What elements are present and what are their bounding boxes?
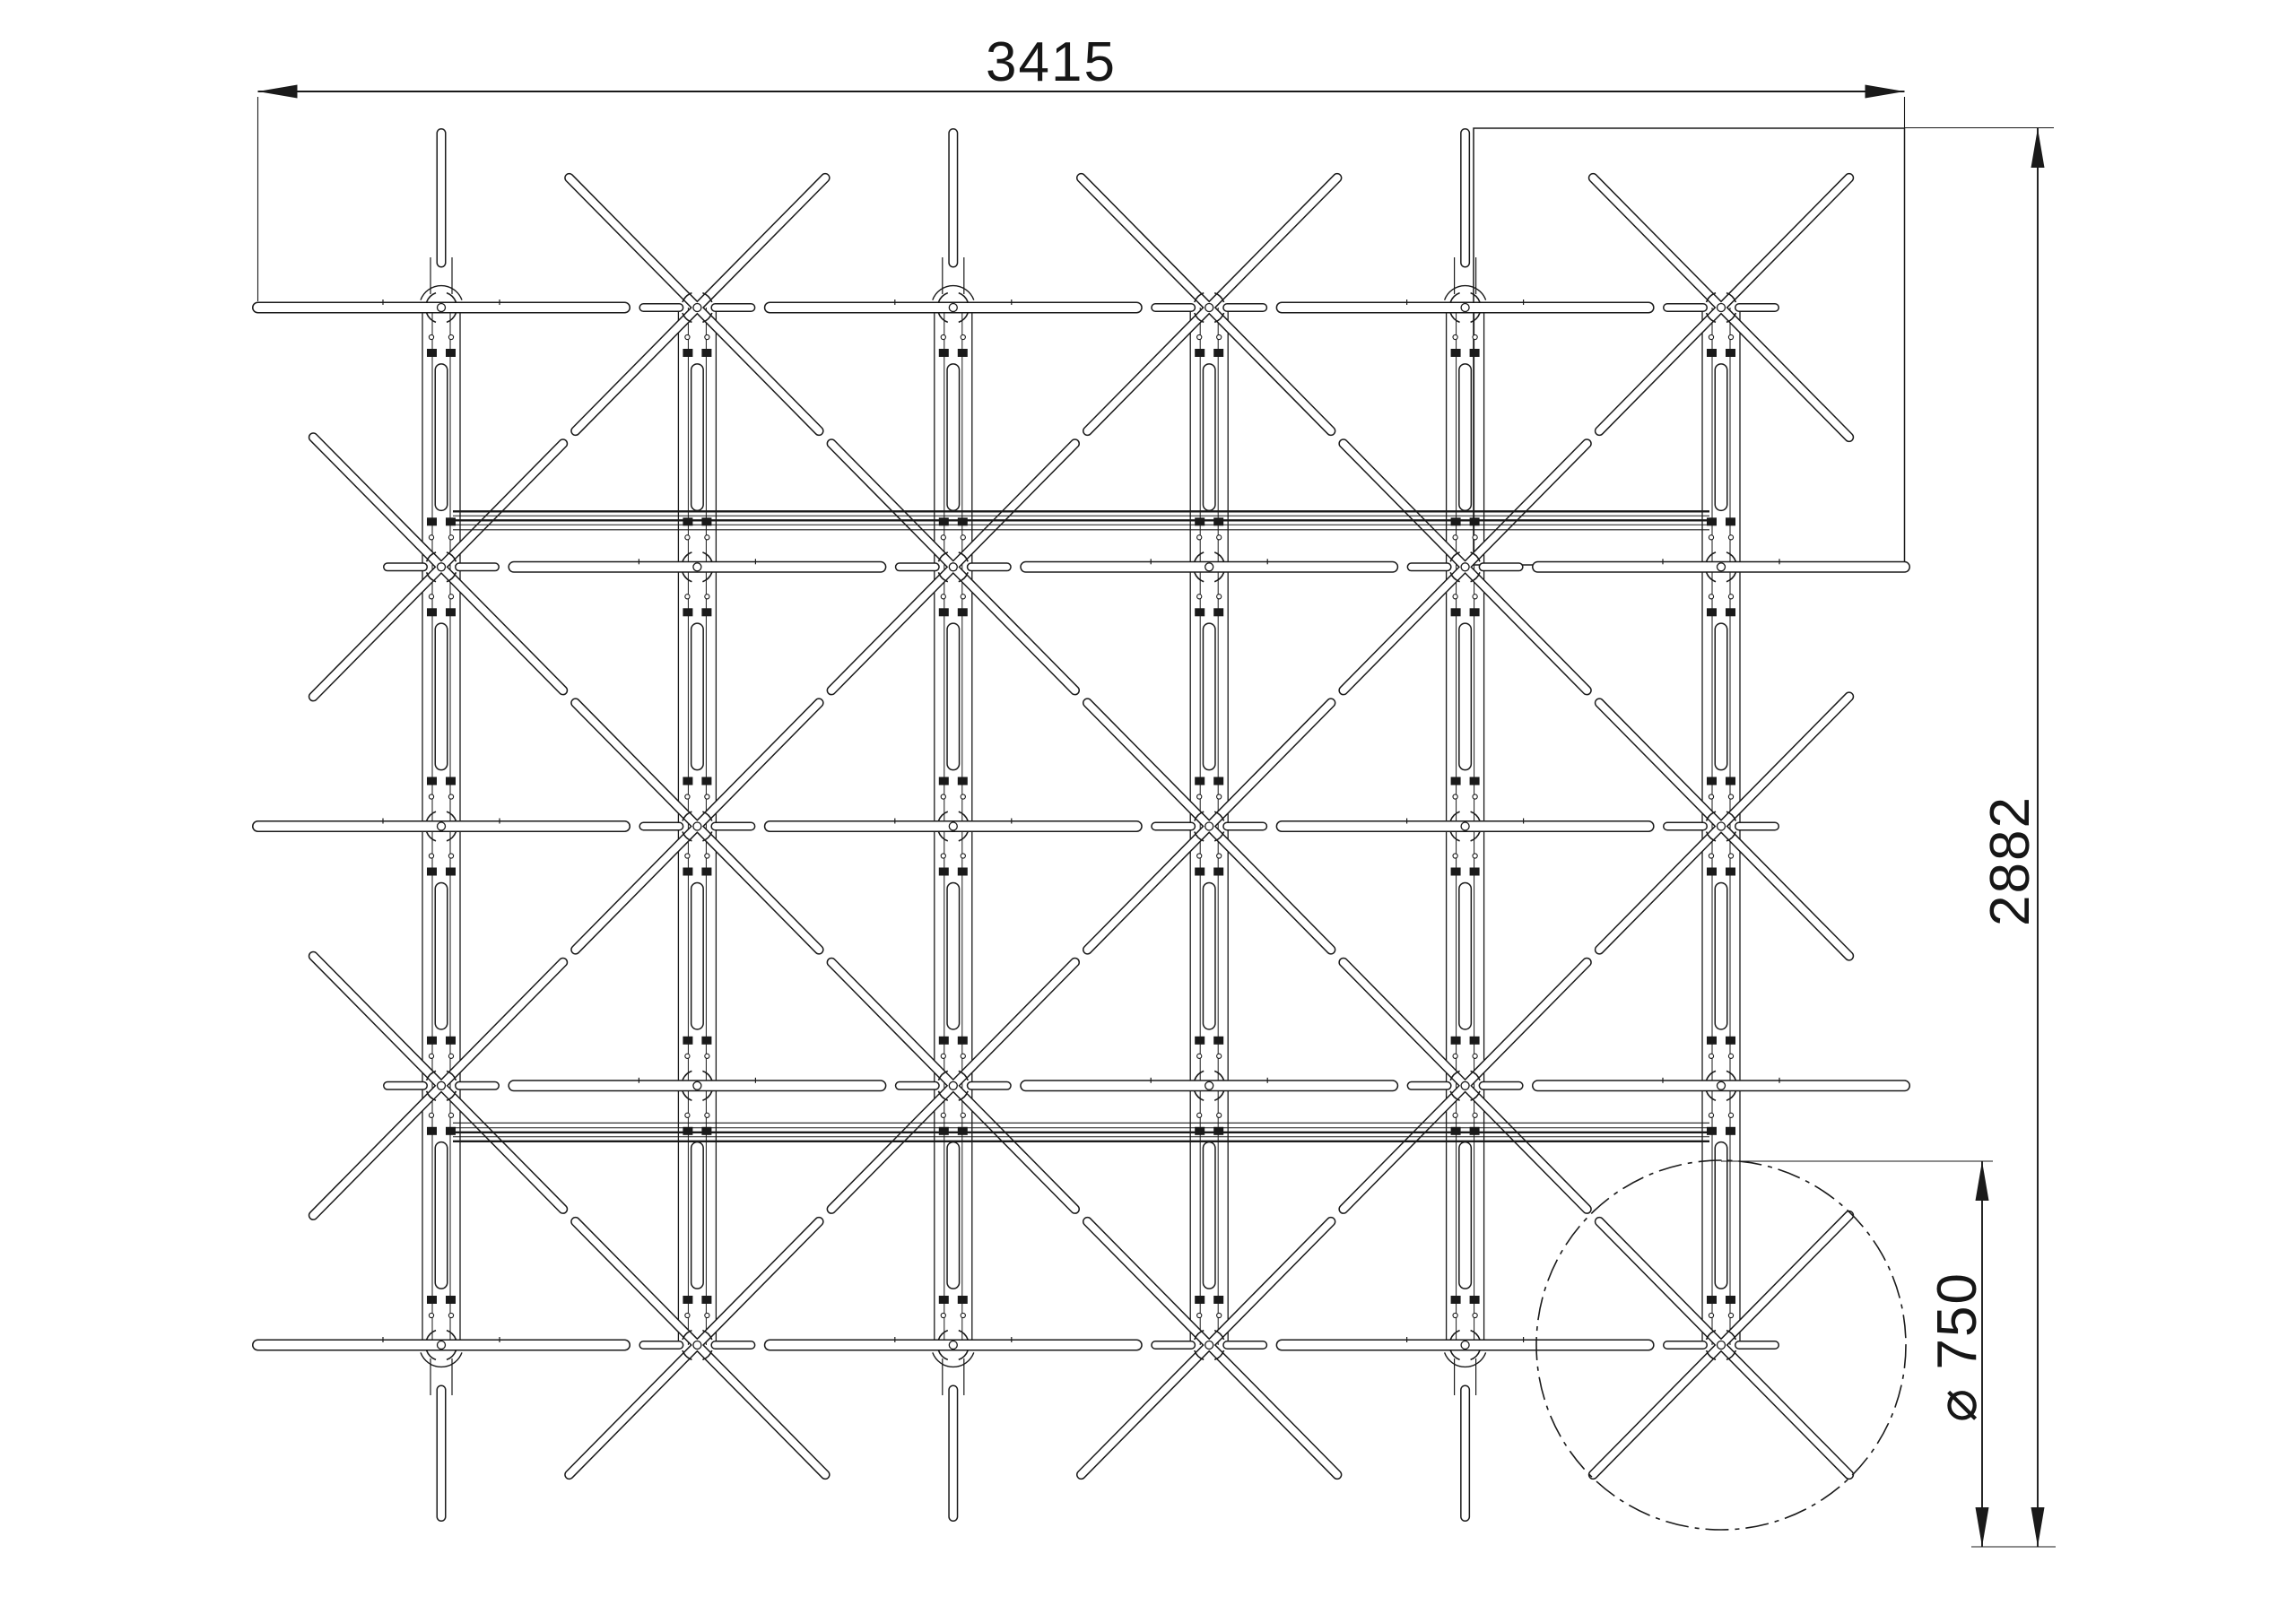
arms — [258, 299, 1905, 1345]
drawing-svg: 3415 2882 ⌀ 750 — [0, 0, 2296, 1623]
dim-height-label: 2882 — [1979, 795, 2041, 926]
dim-width-label: 3415 — [986, 31, 1117, 93]
dimension-width — [258, 85, 1905, 302]
dim-diameter-label: ⌀ 750 — [1926, 1271, 1988, 1422]
drawing-canvas: 3415 2882 ⌀ 750 — [0, 0, 2296, 1623]
structure-layer — [258, 128, 1905, 1517]
